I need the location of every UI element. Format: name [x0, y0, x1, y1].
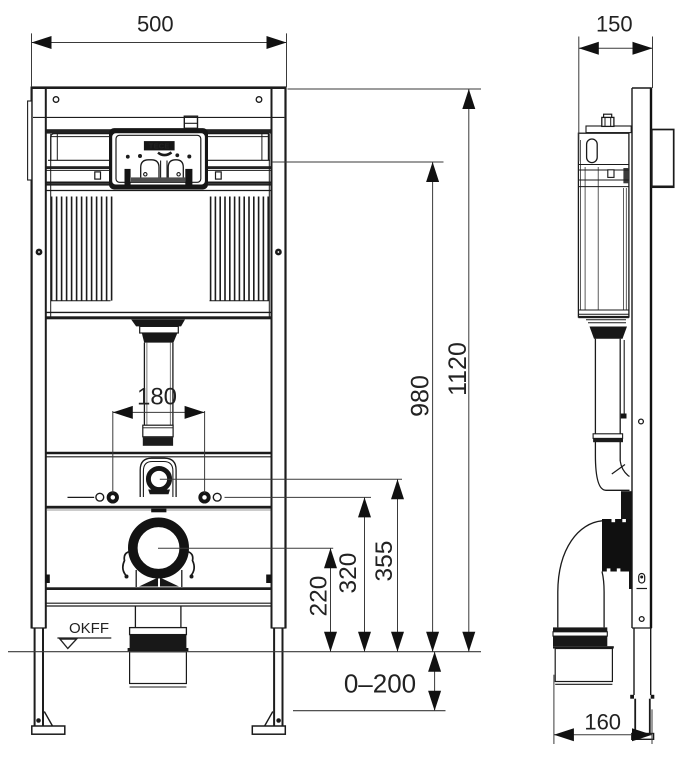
svg-text:355: 355 [371, 541, 398, 582]
svg-text:220: 220 [306, 576, 333, 617]
svg-text:OKFF: OKFF [69, 620, 109, 637]
svg-text:0–200: 0–200 [344, 668, 416, 698]
svg-text:TECE: TECE [149, 142, 170, 151]
svg-text:1120: 1120 [444, 342, 472, 396]
svg-text:980: 980 [406, 375, 434, 417]
svg-text:320: 320 [335, 553, 362, 594]
svg-text:160: 160 [584, 710, 621, 735]
svg-text:180: 180 [137, 384, 177, 411]
svg-text:500: 500 [137, 12, 174, 37]
svg-text:150: 150 [596, 12, 633, 37]
